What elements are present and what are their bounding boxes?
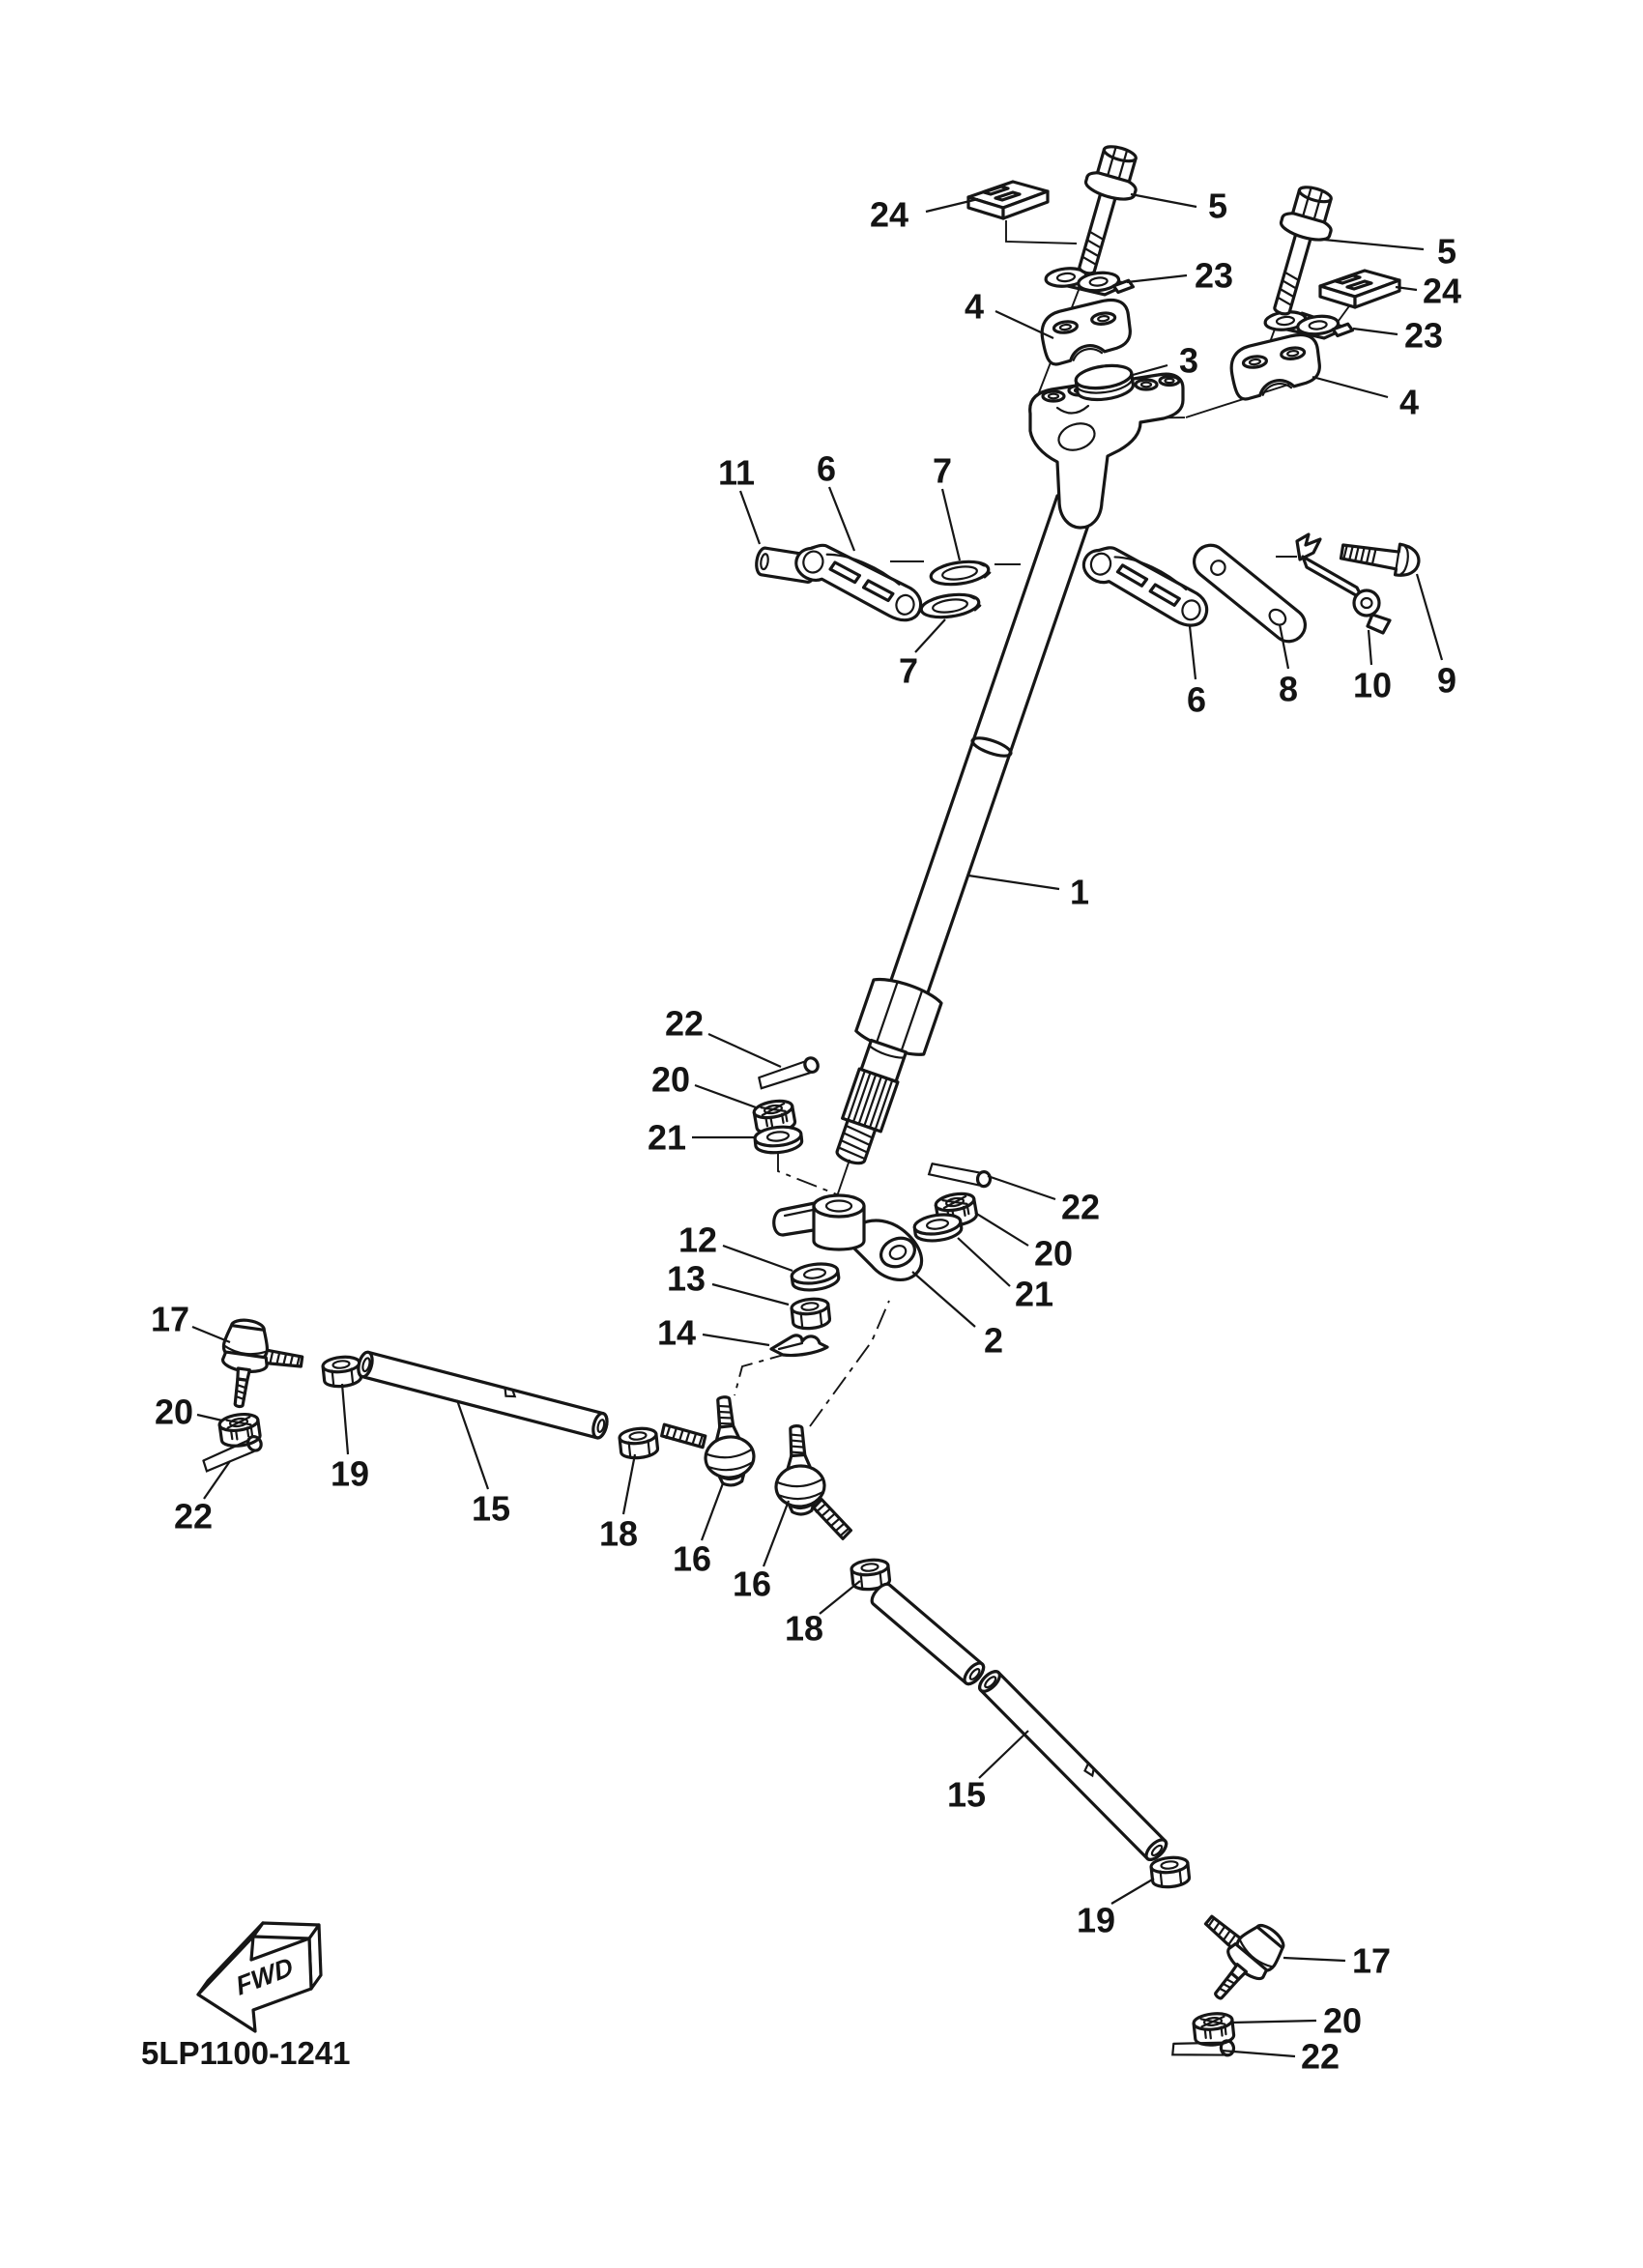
callout-label-9: 9	[1437, 661, 1456, 701]
pad-leader-left	[1006, 220, 1077, 244]
callout-label-5: 5	[1437, 232, 1456, 272]
callout-label-22: 22	[174, 1497, 213, 1536]
callout-label-15: 15	[472, 1489, 510, 1529]
tie-rod-lower-b	[976, 1668, 1169, 1863]
inner-tie-rod-end-left	[700, 1394, 757, 1487]
callout-leader-4	[1312, 377, 1388, 397]
callout-leader-15	[979, 1731, 1028, 1778]
callout-label-15: 15	[947, 1775, 986, 1815]
callout-leader-18	[623, 1454, 635, 1514]
callout-label-20: 20	[1034, 1234, 1073, 1274]
cotter-pin-stem-right	[929, 1163, 991, 1187]
callout-leader-5	[1131, 194, 1196, 207]
callout-label-6: 6	[817, 449, 836, 489]
handlebar-pad-left	[968, 182, 1048, 218]
washer-stem-right	[913, 1212, 963, 1243]
callout-leader-20	[197, 1415, 222, 1421]
callout-label-19: 19	[1077, 1901, 1115, 1940]
callout-label-21: 21	[648, 1118, 686, 1158]
callout-label-13: 13	[667, 1259, 706, 1299]
callout-leader-22	[708, 1034, 781, 1067]
head-hole	[1166, 379, 1174, 383]
callout-leader-18	[820, 1581, 860, 1614]
callout-leader-14	[703, 1335, 769, 1345]
callout-label-20: 20	[651, 1060, 690, 1100]
callout-leader-19	[1111, 1879, 1154, 1904]
handlebar-pad-right	[1320, 271, 1399, 307]
callout-leader-11	[740, 491, 760, 544]
arm-nut	[791, 1298, 830, 1331]
inner-thread-left	[661, 1424, 706, 1448]
callout-label-20: 20	[155, 1392, 193, 1432]
handlebar-clamp-group-left	[968, 141, 1145, 365]
callout-label-21: 21	[1015, 1275, 1053, 1314]
outer-tie-rod-end-right	[1174, 1895, 1290, 2012]
callout-label-17: 17	[1352, 1941, 1391, 1981]
callout-label-22: 22	[1061, 1188, 1100, 1227]
head-hole	[1049, 394, 1058, 399]
head-hole	[1141, 383, 1151, 388]
callout-leader-23	[1127, 275, 1187, 282]
bracket-bolt	[1340, 535, 1421, 578]
callout-leader-20	[695, 1085, 756, 1107]
callout-leader-15	[457, 1400, 488, 1489]
stem-nut-centerline	[778, 1152, 847, 1198]
tie-rod-lower-a	[869, 1581, 988, 1687]
steering-arm	[774, 1195, 922, 1279]
callout-label-3: 3	[1179, 341, 1198, 381]
wave-washer-lower	[920, 591, 981, 620]
shaft-clamp-group-left	[755, 539, 991, 623]
callout-label-10: 10	[1353, 666, 1392, 705]
spring-clip	[771, 1335, 827, 1356]
callout-label-20: 20	[1323, 2001, 1362, 2041]
callout-leader-17	[192, 1327, 230, 1342]
callout-label-6: 6	[1187, 680, 1206, 720]
callout-leader-22	[988, 1176, 1055, 1199]
shaft-tube	[889, 496, 1094, 998]
callout-layer: 2452343524234116776810912220211213142220…	[151, 187, 1461, 2077]
jam-nut-inner-left	[619, 1427, 658, 1460]
callout-leader-16	[764, 1501, 789, 1566]
callout-leader-16	[702, 1483, 723, 1540]
callout-leader-10	[1369, 630, 1371, 665]
jam-nut-outer-left	[322, 1356, 361, 1389]
callout-label-4: 4	[965, 287, 984, 327]
callout-label-17: 17	[151, 1300, 189, 1339]
callout-label-16: 16	[733, 1565, 771, 1604]
callout-leader-20	[975, 1213, 1028, 1246]
callout-leader-7	[942, 489, 960, 560]
jam-nut-outer-right	[1150, 1856, 1190, 1889]
callout-label-2: 2	[984, 1321, 1003, 1361]
callout-leader-21	[958, 1238, 1010, 1286]
handlebar-upper-clamp-right	[1228, 332, 1323, 400]
callout-leader-13	[712, 1284, 789, 1305]
callout-label-23: 23	[1195, 256, 1233, 296]
holder-link-plate	[1188, 538, 1312, 647]
drawing-code: 5LP1100-1241	[141, 2035, 351, 2071]
outer-tie-rod-end-left	[216, 1317, 306, 1414]
callout-label-4: 4	[1399, 383, 1419, 422]
callout-leader-9	[1417, 574, 1442, 660]
callout-leader-17	[1283, 1958, 1345, 1961]
inner-thread-right	[812, 1500, 851, 1539]
joint-centerline-left	[735, 1353, 791, 1395]
handlebar-clamp-group-right	[1228, 182, 1399, 400]
callout-label-11: 11	[718, 453, 755, 493]
callout-leader-6	[1190, 626, 1196, 679]
callout-label-19: 19	[331, 1454, 369, 1494]
callout-label-12: 12	[678, 1220, 717, 1260]
shaft-lower-end	[804, 974, 943, 1206]
clamp-bolt-left	[1062, 141, 1146, 279]
callout-label-7: 7	[933, 451, 952, 491]
callout-leader-2	[912, 1272, 975, 1327]
handlebar-upper-clamp-left	[1039, 298, 1134, 365]
fwd-arrow: FWD	[198, 1923, 321, 2031]
tie-rod-upper	[356, 1351, 609, 1440]
callout-label-22: 22	[665, 1004, 704, 1044]
callout-leader-7	[915, 619, 945, 652]
callout-label-8: 8	[1279, 670, 1298, 709]
arm-washer	[791, 1261, 840, 1292]
wave-washer-upper	[930, 559, 991, 588]
callout-leader-19	[342, 1384, 348, 1454]
callout-label-24: 24	[1423, 272, 1461, 311]
callout-label-1: 1	[1070, 873, 1089, 912]
callout-label-22: 22	[1301, 2037, 1340, 2077]
callout-label-24: 24	[870, 195, 908, 235]
tie-rod-assembly-right	[772, 1424, 1291, 2065]
callout-label-18: 18	[785, 1609, 823, 1649]
callout-leader-6	[829, 487, 854, 551]
callout-label-7: 7	[899, 651, 918, 691]
callout-label-5: 5	[1208, 187, 1227, 226]
callout-label-16: 16	[673, 1539, 711, 1579]
cotter-pin-stem-left	[757, 1050, 821, 1098]
callout-label-14: 14	[657, 1313, 696, 1353]
steering-shaft	[804, 374, 1183, 1206]
callout-leader-5	[1324, 240, 1424, 249]
callout-leader-12	[723, 1246, 793, 1271]
callout-label-18: 18	[599, 1514, 638, 1554]
callout-leader-23	[1353, 329, 1398, 334]
callout-label-23: 23	[1404, 316, 1443, 356]
callout-leader-1	[968, 876, 1059, 889]
parts-diagram-page: FWD 5LP1100-1241 24523435242341167768109…	[0, 0, 1643, 2268]
steering-exploded-diagram: FWD 5LP1100-1241 24523435242341167768109…	[0, 0, 1643, 2268]
callout-leader-20	[1231, 2021, 1316, 2023]
castle-nut-outer-left	[218, 1412, 261, 1448]
